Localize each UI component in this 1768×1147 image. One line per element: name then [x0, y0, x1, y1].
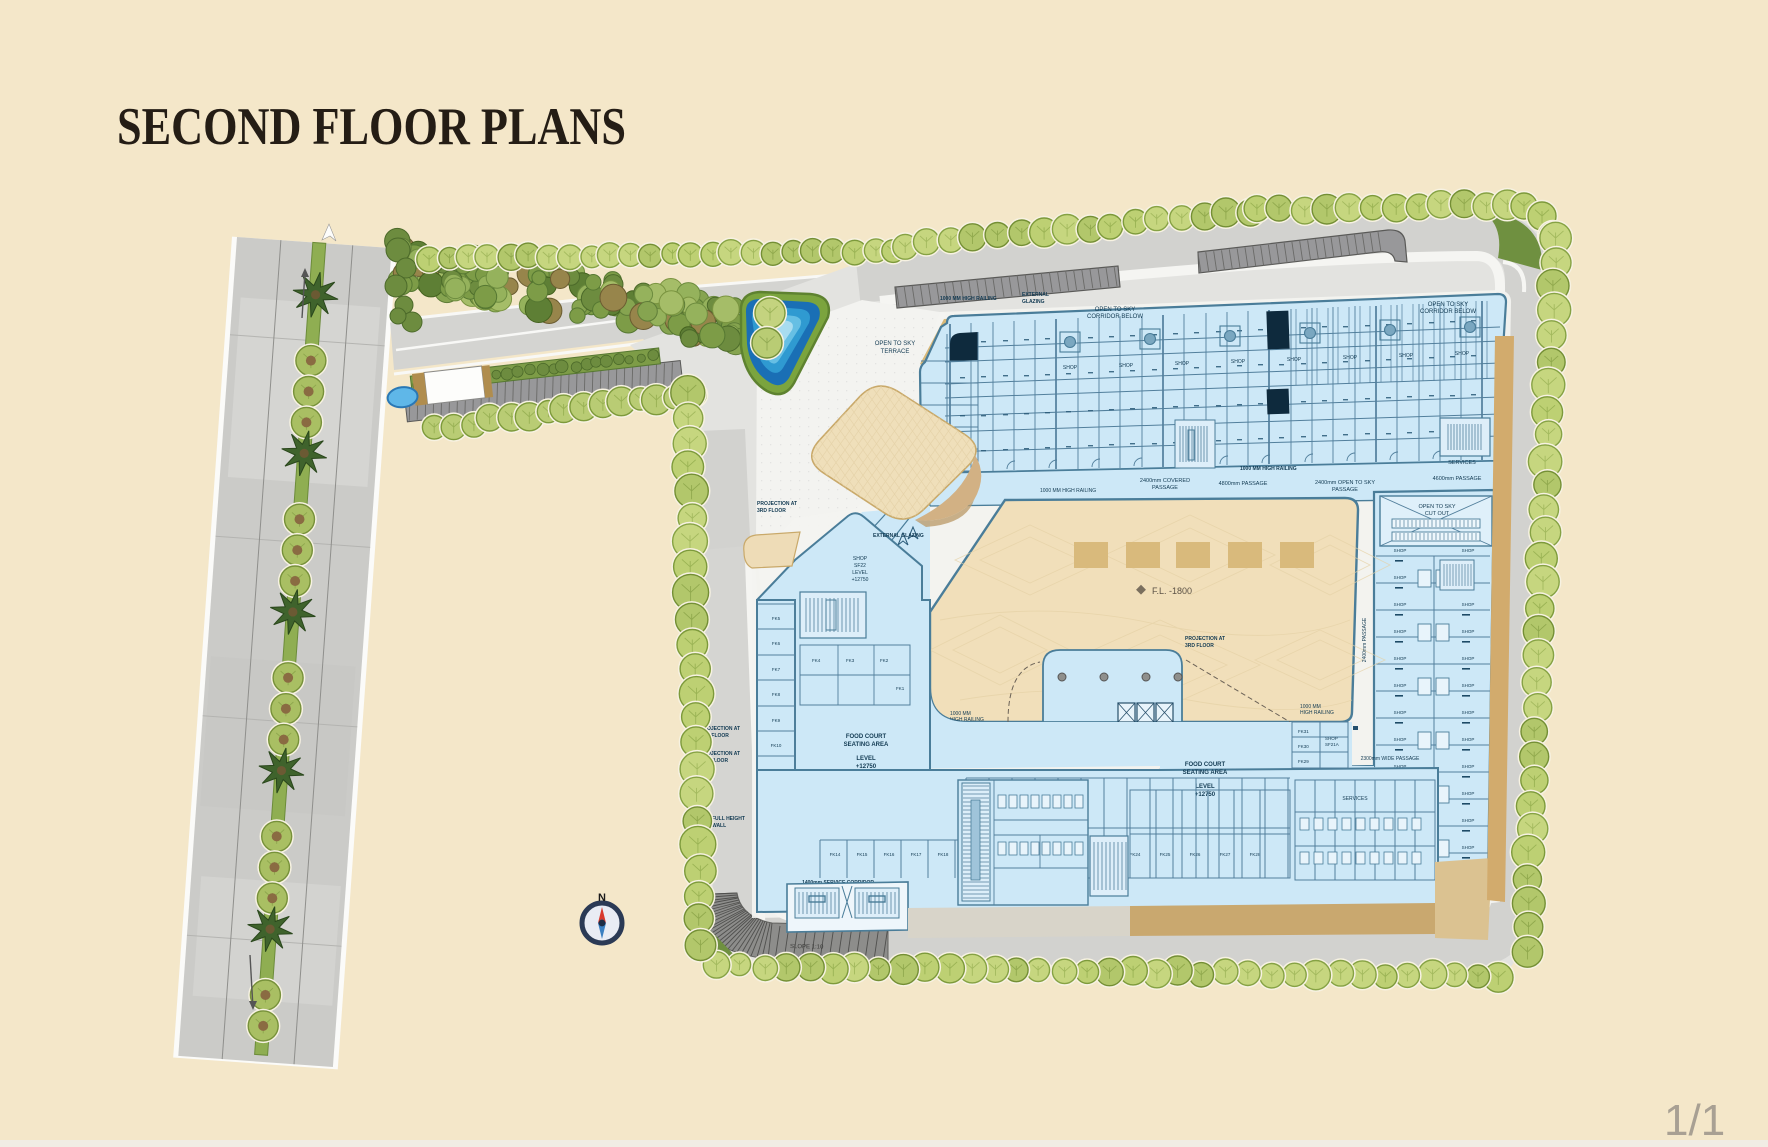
- svg-text:SHOP: SHOP: [1462, 845, 1475, 850]
- svg-text:SHOP: SHOP: [1462, 629, 1475, 634]
- svg-text:SHOP: SHOP: [1462, 683, 1475, 688]
- svg-text:1000 MM HIGH RAILING: 1000 MM HIGH RAILING: [940, 296, 997, 302]
- svg-text:OPEN TO SKY: OPEN TO SKY: [1428, 302, 1468, 308]
- svg-text:SECOND FLOOR PLANS: SECOND FLOOR PLANS: [117, 98, 626, 156]
- svg-text:SHOP: SHOP: [1287, 357, 1302, 363]
- svg-text:1000 MM HIGH RAILING: 1000 MM HIGH RAILING: [1240, 466, 1297, 472]
- svg-text:SHOP: SHOP: [1394, 548, 1407, 553]
- svg-text:SHOP: SHOP: [1462, 737, 1475, 742]
- svg-text:FK4: FK4: [812, 658, 821, 663]
- svg-text:PASSAGE: PASSAGE: [1332, 487, 1358, 493]
- svg-text:SHOP: SHOP: [853, 556, 868, 562]
- svg-text:FK5: FK5: [772, 616, 781, 621]
- svg-text:SF22: SF22: [854, 563, 866, 569]
- svg-text:SHOP: SHOP: [1394, 656, 1407, 661]
- svg-text:CUT OUT: CUT OUT: [1425, 511, 1450, 517]
- svg-text:FK2: FK2: [880, 658, 889, 663]
- svg-text:FK17: FK17: [911, 852, 922, 857]
- svg-text:FOOD COURT: FOOD COURT: [1185, 762, 1226, 768]
- svg-text:3RD FLOOR: 3RD FLOOR: [757, 508, 786, 514]
- svg-text:+12750: +12750: [852, 577, 869, 583]
- svg-text:SHOP: SHOP: [1063, 365, 1078, 371]
- svg-text:EXTERNAL GLAZING: EXTERNAL GLAZING: [873, 533, 924, 539]
- svg-text:SHOP: SHOP: [1394, 629, 1407, 634]
- svg-text:4600mm PASSAGE: 4600mm PASSAGE: [1433, 476, 1482, 482]
- svg-text:SHOP: SHOP: [1394, 602, 1407, 607]
- svg-text:PROJECTION AT: PROJECTION AT: [1185, 636, 1225, 642]
- svg-text:SLOPE 1:10: SLOPE 1:10: [790, 944, 824, 951]
- svg-text:2300mm WIDE PASSAGE: 2300mm WIDE PASSAGE: [1361, 756, 1420, 762]
- svg-text:SHOP: SHOP: [1325, 736, 1338, 741]
- svg-text:TERRACE: TERRACE: [881, 349, 910, 355]
- svg-text:OPEN TO SKY: OPEN TO SKY: [1095, 307, 1135, 313]
- svg-text:FK1: FK1: [896, 686, 905, 691]
- svg-text:3RD FLOOR: 3RD FLOOR: [1185, 643, 1214, 649]
- svg-text:SEATING AREA: SEATING AREA: [844, 742, 889, 748]
- svg-text:F.L. -1800: F.L. -1800: [1152, 586, 1192, 596]
- svg-text:GLAZING: GLAZING: [1022, 299, 1045, 305]
- svg-text:HIGH RAILING: HIGH RAILING: [1300, 710, 1334, 716]
- svg-text:SHOP: SHOP: [1394, 683, 1407, 688]
- svg-text:PASSAGE: PASSAGE: [1152, 485, 1178, 491]
- svg-text:SERVICES: SERVICES: [1342, 796, 1368, 802]
- svg-text:FK25: FK25: [1160, 852, 1171, 857]
- svg-text:FK10: FK10: [771, 743, 782, 748]
- svg-text:FK3: FK3: [846, 658, 855, 663]
- svg-text:OPEN TO SKY: OPEN TO SKY: [1418, 504, 1455, 510]
- svg-text:SHOP: SHOP: [1394, 710, 1407, 715]
- svg-text:N: N: [598, 892, 606, 904]
- svg-text:SHOP: SHOP: [1462, 710, 1475, 715]
- svg-text:FOOD COURT: FOOD COURT: [846, 734, 887, 740]
- svg-text:2400mm OPEN TO SKY: 2400mm OPEN TO SKY: [1315, 480, 1375, 486]
- svg-text:EXTERNAL: EXTERNAL: [1022, 292, 1049, 298]
- svg-text:FK16: FK16: [884, 852, 895, 857]
- svg-text:FK9: FK9: [772, 718, 781, 723]
- svg-text:FK26: FK26: [1190, 852, 1201, 857]
- svg-text:SHOP: SHOP: [1462, 656, 1475, 661]
- svg-text:OPEN TO SKY: OPEN TO SKY: [875, 341, 915, 347]
- svg-text:LEVEL: LEVEL: [852, 570, 868, 576]
- svg-text:FULL HEIGHT: FULL HEIGHT: [712, 816, 745, 822]
- svg-text:4800mm PASSAGE: 4800mm PASSAGE: [1219, 481, 1268, 487]
- svg-text:FK30: FK30: [1298, 744, 1309, 749]
- svg-text:FK24: FK24: [1130, 852, 1141, 857]
- svg-text:CORRIDOR BELOW: CORRIDOR BELOW: [1420, 309, 1476, 315]
- svg-text:SHOP: SHOP: [1462, 791, 1475, 796]
- svg-text:FK14: FK14: [830, 852, 841, 857]
- svg-text:1/1: 1/1: [1664, 1096, 1725, 1145]
- svg-text:FK29: FK29: [1298, 759, 1309, 764]
- svg-text:LEVEL: LEVEL: [856, 756, 876, 762]
- svg-text:WALL: WALL: [712, 823, 726, 829]
- svg-text:FK15: FK15: [857, 852, 868, 857]
- svg-text:1000 MM HIGH RAILING: 1000 MM HIGH RAILING: [1040, 488, 1096, 494]
- svg-text:SHOP: SHOP: [1394, 737, 1407, 742]
- svg-text:SHOP: SHOP: [1231, 359, 1246, 365]
- svg-text:SHOP: SHOP: [1462, 548, 1475, 553]
- svg-text:2400mm PASSAGE: 2400mm PASSAGE: [1362, 617, 1368, 662]
- svg-text:SHOP: SHOP: [1394, 575, 1407, 580]
- svg-text:FK7: FK7: [772, 667, 781, 672]
- svg-text:SHOP: SHOP: [1462, 602, 1475, 607]
- svg-text:LEVEL: LEVEL: [1195, 784, 1215, 790]
- svg-text:SHOP: SHOP: [1343, 355, 1358, 361]
- svg-text:+12750: +12750: [1195, 792, 1216, 798]
- svg-text:FK27: FK27: [1220, 852, 1231, 857]
- svg-text:FK8: FK8: [772, 692, 781, 697]
- svg-text:SHOP: SHOP: [1462, 764, 1475, 769]
- svg-text:SHOP: SHOP: [1119, 363, 1134, 369]
- svg-text:SERVICES: SERVICES: [1448, 460, 1476, 466]
- svg-text:SEATING AREA: SEATING AREA: [1183, 770, 1228, 776]
- svg-text:SHOP: SHOP: [1175, 361, 1190, 367]
- svg-text:SHOP: SHOP: [1399, 353, 1414, 359]
- svg-text:SHOP: SHOP: [1455, 351, 1470, 357]
- svg-text:CORRIDOR BELOW: CORRIDOR BELOW: [1087, 314, 1143, 320]
- svg-text:2400mm COVERED: 2400mm COVERED: [1140, 478, 1190, 484]
- svg-text:SHOP: SHOP: [1462, 818, 1475, 823]
- svg-text:PROJECTION AT: PROJECTION AT: [757, 501, 797, 507]
- svg-text:FK6: FK6: [772, 641, 781, 646]
- svg-text:FK18: FK18: [938, 852, 949, 857]
- svg-text:FK28: FK28: [1250, 852, 1261, 857]
- svg-text:FK31: FK31: [1298, 729, 1309, 734]
- svg-text:SF21A: SF21A: [1325, 742, 1339, 747]
